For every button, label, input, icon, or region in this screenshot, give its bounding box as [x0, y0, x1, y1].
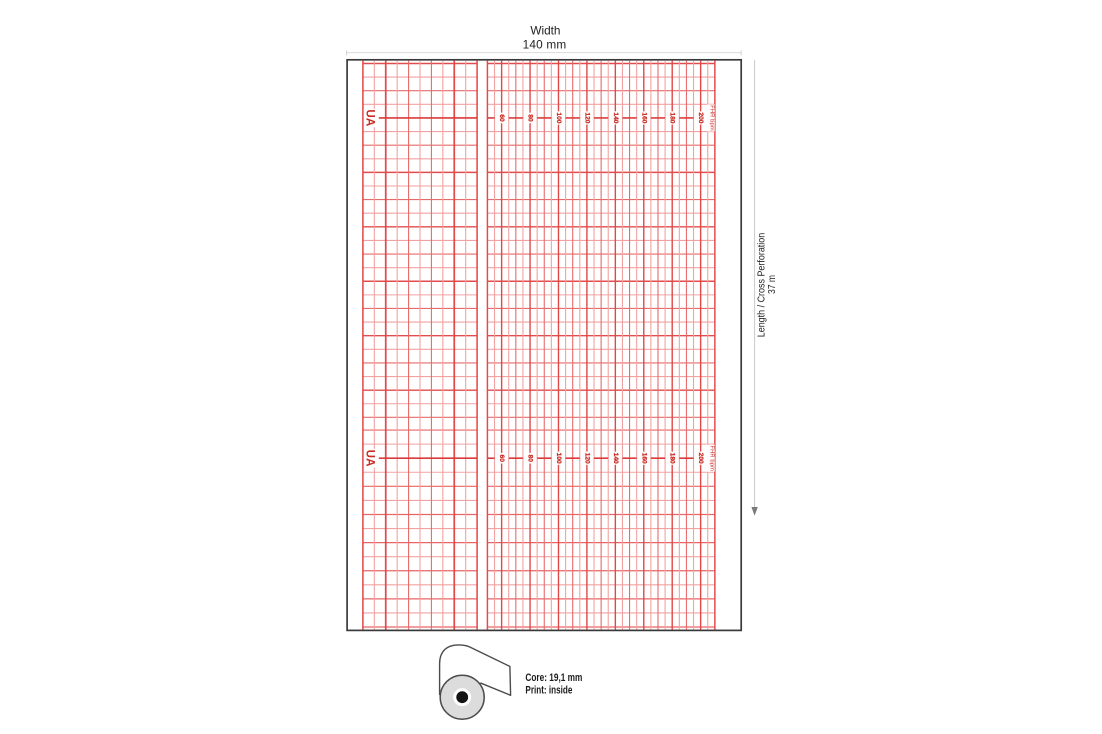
- svg-text:120: 120: [583, 453, 590, 464]
- svg-text:80: 80: [527, 454, 534, 462]
- svg-text:180: 180: [669, 112, 676, 123]
- svg-text:200: 200: [697, 112, 704, 123]
- svg-text:FHR bpm: FHR bpm: [708, 105, 714, 131]
- svg-text:UA: UA: [364, 109, 377, 127]
- svg-text:80: 80: [527, 114, 534, 122]
- svg-text:180: 180: [669, 453, 676, 464]
- svg-text:160: 160: [640, 112, 647, 123]
- svg-text:60: 60: [498, 454, 505, 462]
- svg-text:Core: 19,1 mm: Core: 19,1 mm: [525, 672, 582, 684]
- svg-text:120: 120: [583, 112, 590, 123]
- svg-text:100: 100: [555, 453, 562, 464]
- svg-text:60: 60: [498, 114, 505, 122]
- svg-text:Print: inside: Print: inside: [525, 684, 572, 696]
- svg-text:Length / Cross Perforation: Length / Cross Perforation: [757, 233, 768, 338]
- svg-text:140 mm: 140 mm: [523, 37, 567, 51]
- svg-text:140: 140: [612, 453, 619, 464]
- svg-text:Width: Width: [530, 24, 560, 38]
- svg-text:140: 140: [612, 112, 619, 123]
- svg-text:FHR bpm: FHR bpm: [708, 445, 714, 471]
- svg-text:37 m: 37 m: [767, 275, 778, 294]
- svg-text:100: 100: [555, 112, 562, 123]
- svg-text:200: 200: [697, 453, 704, 464]
- svg-text:UA: UA: [364, 450, 377, 468]
- svg-text:160: 160: [640, 453, 647, 464]
